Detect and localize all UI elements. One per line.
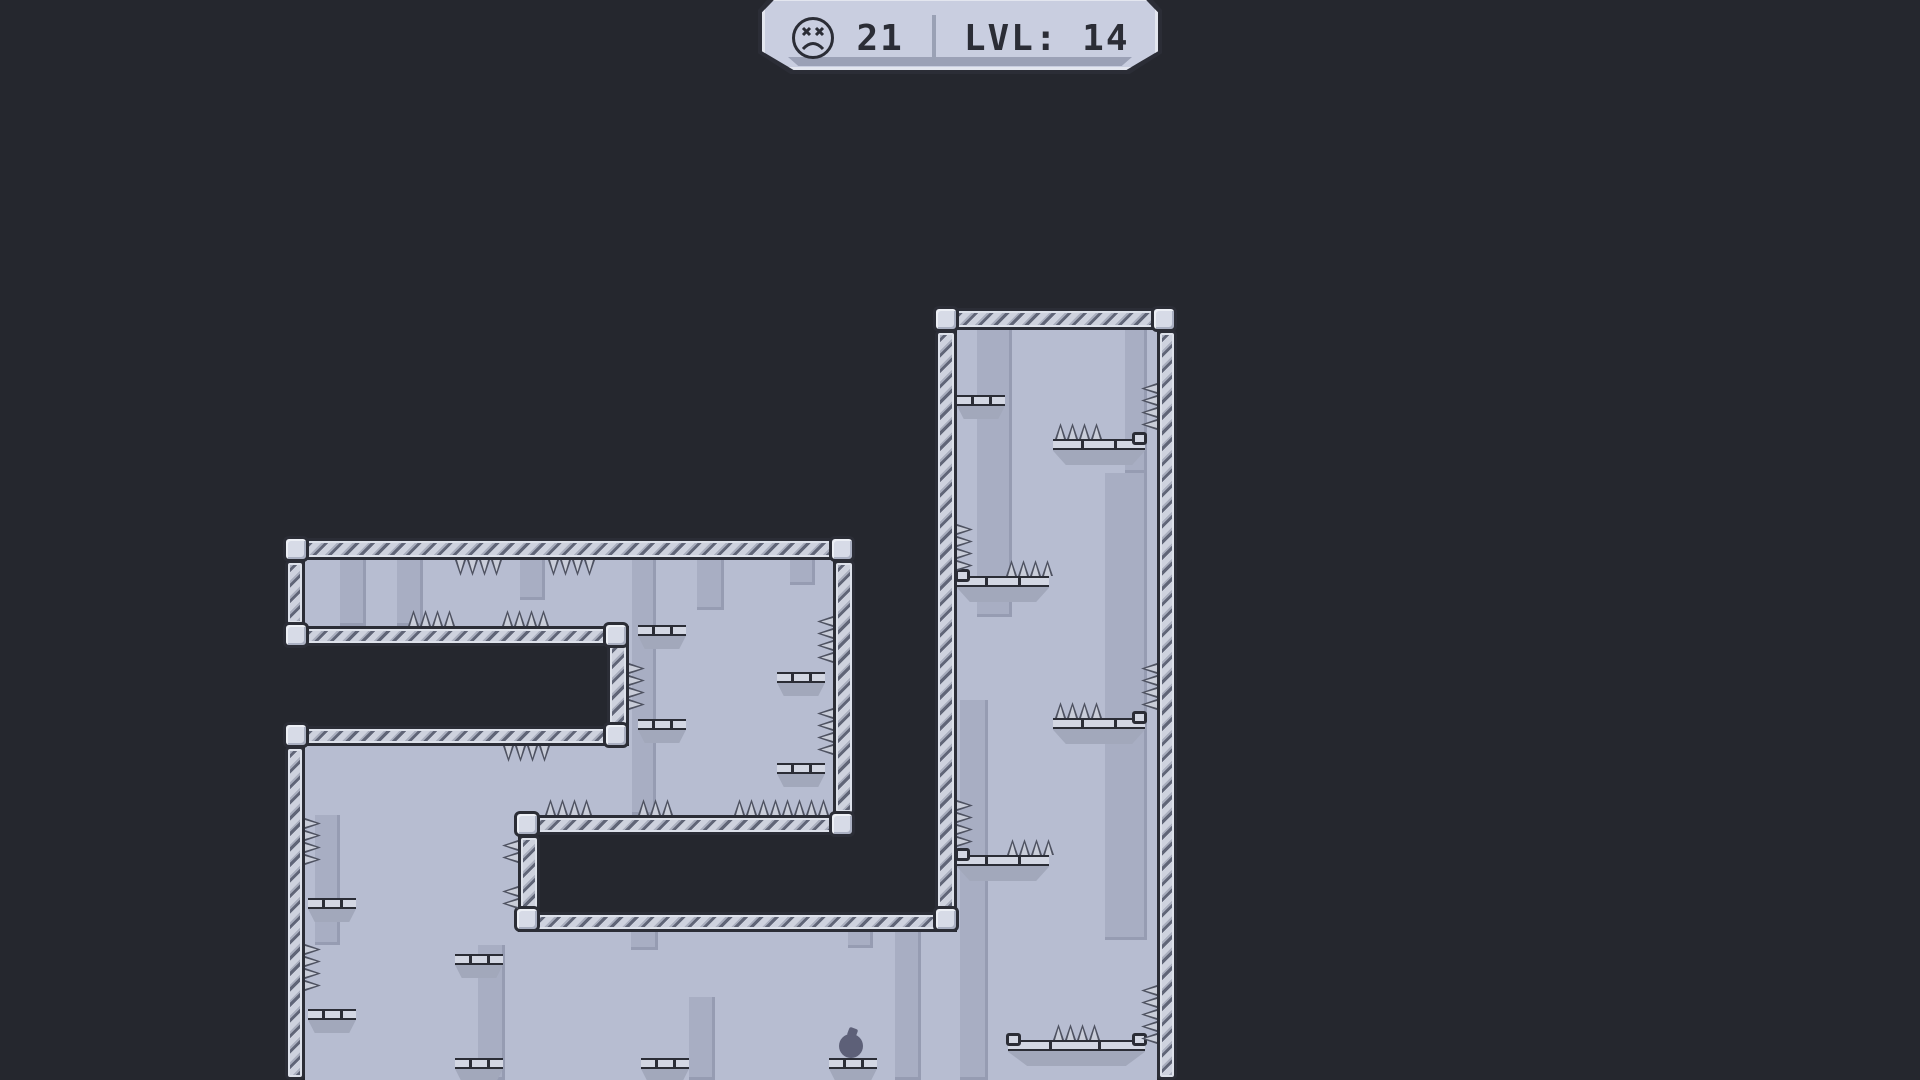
right-spike bbox=[305, 818, 321, 829]
spike-group bbox=[1141, 383, 1157, 430]
left-spike bbox=[1141, 407, 1157, 418]
up-spike bbox=[526, 610, 537, 626]
wall-corner-cap bbox=[829, 811, 855, 837]
up-spike bbox=[806, 799, 817, 815]
platform bbox=[957, 395, 1005, 419]
spike-group bbox=[545, 799, 592, 815]
platform bbox=[641, 1058, 689, 1080]
spike-group bbox=[817, 616, 833, 663]
up-spike bbox=[408, 610, 419, 626]
wall-corner-cap bbox=[283, 536, 309, 562]
right-spike bbox=[305, 968, 321, 979]
right-spike bbox=[629, 699, 645, 710]
left-spike bbox=[1141, 1033, 1157, 1044]
right-spike bbox=[629, 675, 645, 686]
hud-panel: 21 LVL: 14 bbox=[758, 0, 1162, 74]
platform-lip bbox=[1006, 1033, 1021, 1046]
backdrop-strip bbox=[520, 560, 545, 600]
wall-corner-cap bbox=[933, 306, 959, 332]
platform-lip bbox=[1132, 711, 1147, 724]
right-spike bbox=[305, 956, 321, 967]
up-spike bbox=[1042, 560, 1053, 576]
up-spike bbox=[770, 799, 781, 815]
wall-segment bbox=[518, 835, 540, 912]
backdrop-strip bbox=[689, 997, 715, 1080]
left-spike bbox=[817, 708, 833, 719]
right-spike bbox=[957, 824, 973, 835]
spike-group bbox=[408, 610, 455, 626]
up-spike bbox=[1053, 1024, 1064, 1040]
spike-group bbox=[548, 560, 595, 576]
death-count: 21 bbox=[856, 18, 903, 59]
platform-lip bbox=[1132, 432, 1147, 445]
spike-group bbox=[1055, 423, 1102, 439]
left-spike bbox=[1141, 997, 1157, 1008]
down-spike bbox=[503, 746, 514, 762]
left-spike bbox=[1141, 699, 1157, 710]
game-viewport[interactable]: 21 LVL: 14 bbox=[0, 0, 1920, 1080]
down-spike bbox=[560, 560, 571, 576]
spike-group bbox=[629, 663, 645, 710]
up-spike bbox=[818, 799, 829, 815]
left-spike bbox=[1141, 1009, 1157, 1020]
up-spike bbox=[420, 610, 431, 626]
up-spike bbox=[432, 610, 443, 626]
spike-group bbox=[1006, 560, 1053, 576]
platform bbox=[777, 672, 825, 696]
wall-segment bbox=[285, 726, 629, 746]
wall-corner-cap bbox=[283, 722, 309, 748]
up-spike bbox=[1091, 702, 1102, 718]
backdrop-strip bbox=[340, 560, 366, 626]
up-spike bbox=[650, 799, 661, 815]
platform bbox=[308, 1009, 356, 1033]
wall-corner-cap bbox=[514, 811, 540, 837]
up-spike bbox=[1067, 423, 1078, 439]
wall-segment bbox=[935, 330, 957, 912]
player bbox=[839, 1034, 863, 1058]
up-spike bbox=[794, 799, 805, 815]
left-spike bbox=[502, 886, 518, 897]
backdrop-strip bbox=[895, 932, 921, 1080]
up-spike bbox=[444, 610, 455, 626]
spike-group bbox=[1141, 663, 1157, 710]
up-spike bbox=[1019, 839, 1030, 855]
wall-segment bbox=[285, 560, 305, 626]
down-spike bbox=[572, 560, 583, 576]
wall-corner-cap bbox=[514, 906, 540, 932]
spike-group bbox=[503, 746, 550, 762]
right-spike bbox=[957, 800, 973, 811]
wall-segment bbox=[1157, 330, 1177, 1080]
right-spike bbox=[957, 536, 973, 547]
wall-segment bbox=[285, 626, 629, 646]
left-spike bbox=[1141, 383, 1157, 394]
platform bbox=[1008, 1040, 1145, 1066]
wall-segment bbox=[285, 538, 855, 560]
platform bbox=[455, 954, 503, 978]
wall-corner-cap bbox=[933, 906, 959, 932]
left-spike bbox=[817, 616, 833, 627]
right-spike bbox=[957, 836, 973, 847]
backdrop-strip bbox=[790, 560, 815, 585]
spike-group bbox=[502, 610, 549, 626]
down-spike bbox=[479, 560, 490, 576]
platform bbox=[957, 576, 1049, 602]
up-spike bbox=[502, 610, 513, 626]
level-label: LVL: 14 bbox=[964, 18, 1130, 59]
spike-group bbox=[1055, 702, 1102, 718]
up-spike bbox=[1065, 1024, 1076, 1040]
right-spike bbox=[957, 524, 973, 535]
up-spike bbox=[557, 799, 568, 815]
platform bbox=[957, 855, 1049, 881]
up-spike bbox=[1079, 423, 1090, 439]
spike-group bbox=[638, 799, 673, 815]
right-spike bbox=[957, 812, 973, 823]
wall-segment bbox=[935, 308, 1177, 330]
up-spike bbox=[1067, 702, 1078, 718]
right-spike bbox=[305, 854, 321, 865]
platform bbox=[308, 898, 356, 922]
down-spike bbox=[539, 746, 550, 762]
down-spike bbox=[584, 560, 595, 576]
spike-group bbox=[1141, 985, 1157, 1044]
up-spike bbox=[1077, 1024, 1088, 1040]
up-spike bbox=[734, 799, 745, 815]
platform bbox=[638, 719, 686, 743]
spike-group bbox=[734, 799, 829, 815]
platform bbox=[777, 763, 825, 787]
right-spike bbox=[629, 687, 645, 698]
spike-group bbox=[305, 944, 321, 991]
up-spike bbox=[1055, 423, 1066, 439]
right-spike bbox=[305, 980, 321, 991]
up-spike bbox=[581, 799, 592, 815]
left-spike bbox=[1141, 687, 1157, 698]
down-spike bbox=[491, 560, 502, 576]
right-spike bbox=[957, 560, 973, 571]
left-spike bbox=[817, 732, 833, 743]
spike-group bbox=[502, 886, 518, 909]
up-spike bbox=[638, 799, 649, 815]
up-spike bbox=[1031, 839, 1042, 855]
platform bbox=[455, 1058, 503, 1080]
up-spike bbox=[1091, 423, 1102, 439]
hud-divider bbox=[932, 15, 936, 61]
wall-segment bbox=[285, 746, 305, 1080]
spike-group bbox=[957, 800, 973, 847]
up-spike bbox=[1079, 702, 1090, 718]
up-spike bbox=[1089, 1024, 1100, 1040]
platform bbox=[829, 1058, 877, 1080]
left-spike bbox=[817, 720, 833, 731]
left-spike bbox=[502, 840, 518, 851]
up-spike bbox=[1055, 702, 1066, 718]
left-spike bbox=[502, 898, 518, 909]
wall-segment bbox=[518, 815, 855, 835]
up-spike bbox=[569, 799, 580, 815]
hud-content: 21 LVL: 14 bbox=[758, 2, 1162, 74]
up-spike bbox=[662, 799, 673, 815]
up-spike bbox=[1006, 560, 1017, 576]
up-spike bbox=[1007, 839, 1018, 855]
left-spike bbox=[817, 640, 833, 651]
down-spike bbox=[548, 560, 559, 576]
spike-group bbox=[455, 560, 502, 576]
wall-corner-cap bbox=[603, 722, 629, 748]
platform-lip bbox=[955, 848, 970, 861]
up-spike bbox=[514, 610, 525, 626]
left-spike bbox=[1141, 419, 1157, 430]
left-spike bbox=[1141, 675, 1157, 686]
up-spike bbox=[746, 799, 757, 815]
wall-segment bbox=[833, 560, 855, 815]
up-spike bbox=[1018, 560, 1029, 576]
dead-face-icon bbox=[790, 15, 836, 61]
wall-segment bbox=[518, 912, 957, 932]
down-spike bbox=[467, 560, 478, 576]
left-spike bbox=[817, 744, 833, 755]
backdrop-strip bbox=[697, 560, 724, 610]
left-spike bbox=[1141, 1021, 1157, 1032]
backdrop-strip bbox=[848, 932, 873, 948]
spike-group bbox=[817, 708, 833, 755]
left-spike bbox=[817, 652, 833, 663]
up-spike bbox=[758, 799, 769, 815]
up-spike bbox=[545, 799, 556, 815]
down-spike bbox=[455, 560, 466, 576]
spike-group bbox=[1007, 839, 1054, 855]
left-spike bbox=[1141, 663, 1157, 674]
left-spike bbox=[1141, 985, 1157, 996]
wall-corner-cap bbox=[283, 622, 309, 648]
right-spike bbox=[957, 548, 973, 559]
right-spike bbox=[305, 830, 321, 841]
backdrop-strip bbox=[631, 932, 658, 950]
spike-group bbox=[502, 840, 518, 863]
right-spike bbox=[629, 663, 645, 674]
down-spike bbox=[515, 746, 526, 762]
down-spike bbox=[527, 746, 538, 762]
up-spike bbox=[538, 610, 549, 626]
left-spike bbox=[1141, 395, 1157, 406]
wall-corner-cap bbox=[829, 536, 855, 562]
platform bbox=[638, 625, 686, 649]
spike-group bbox=[957, 524, 973, 571]
wall-corner-cap bbox=[603, 622, 629, 648]
left-spike bbox=[502, 852, 518, 863]
up-spike bbox=[1043, 839, 1054, 855]
up-spike bbox=[1030, 560, 1041, 576]
right-spike bbox=[305, 842, 321, 853]
spike-group bbox=[1053, 1024, 1100, 1040]
right-spike bbox=[305, 944, 321, 955]
wall-corner-cap bbox=[1151, 306, 1177, 332]
backdrop-strip bbox=[960, 700, 988, 1080]
spike-group bbox=[305, 818, 321, 865]
left-spike bbox=[817, 628, 833, 639]
up-spike bbox=[782, 799, 793, 815]
